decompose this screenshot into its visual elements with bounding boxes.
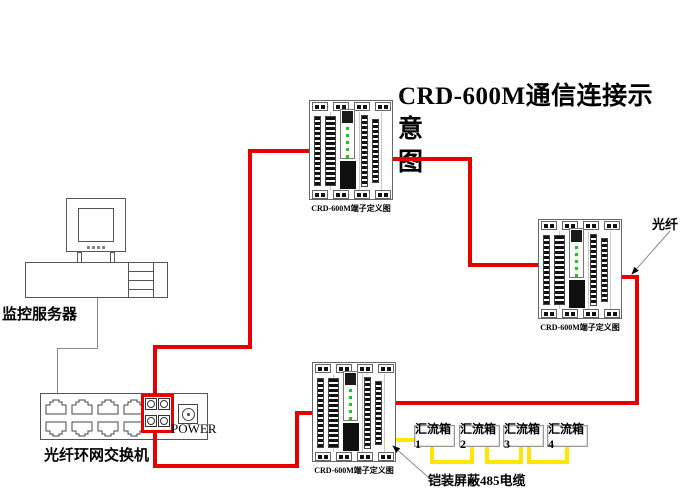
crd600m-panel-right — [538, 219, 622, 319]
monitor-button — [87, 246, 90, 249]
combiner-box-2: 汇流箱2 — [459, 425, 500, 447]
fiber-wire — [248, 149, 252, 349]
server-switch-cable — [97, 298, 98, 349]
combiner-box-1: 汇流箱1 — [414, 425, 455, 447]
combiner-box-4-label: 汇流箱4 — [548, 420, 587, 452]
combiner-box-1-label: 汇流箱1 — [415, 420, 454, 452]
cable485-wire — [485, 460, 523, 464]
fiber-label: 光纤 — [652, 214, 678, 233]
server-case-divider — [153, 262, 154, 298]
fiber-port — [158, 415, 170, 427]
fiber-wire — [295, 411, 299, 468]
server-label: 监控服务器 — [2, 303, 77, 324]
diagram-canvas: CRD-600M通信连接示意 图 监控服务器 POWER 光纤 — [0, 0, 680, 500]
fiber-wire — [468, 263, 548, 267]
cable485-label: 铠装屏蔽485电缆 — [428, 470, 526, 489]
fiber-port — [145, 415, 157, 427]
panel-caption-bottom: CRD-600M端子定义图 — [299, 465, 409, 476]
fiber-port — [145, 398, 157, 410]
comm-module — [340, 109, 355, 159]
fiber-wire — [153, 431, 157, 468]
server-drive-bay-line — [128, 289, 153, 290]
fiber-wire — [153, 464, 299, 468]
panel-caption-right: CRD-600M端子定义图 — [525, 322, 635, 333]
panel-caption-top: CRD-600M端子定义图 — [296, 203, 406, 214]
monitor-button — [97, 246, 100, 249]
cable485-wire — [430, 460, 474, 464]
fiber-wire — [468, 157, 472, 267]
page-title: CRD-600M通信连接示意 图 — [398, 80, 673, 179]
monitor-screen — [78, 208, 114, 242]
fiber-port — [158, 398, 170, 410]
monitor-stand-right — [110, 252, 115, 262]
fiber-wire — [635, 275, 639, 405]
monitor-button — [92, 246, 95, 249]
server-switch-cable — [57, 348, 98, 349]
fiber-wire — [153, 347, 157, 397]
monitor-button — [102, 246, 105, 249]
server-drive-bay-line — [128, 280, 153, 281]
fiber-leader-line — [632, 231, 670, 274]
combiner-box-3: 汇流箱3 — [503, 425, 544, 447]
combiner-box-4: 汇流箱4 — [547, 425, 588, 447]
switch-label: 光纤环网交换机 — [44, 444, 149, 465]
comm-module — [343, 371, 358, 421]
fiber-wire — [153, 345, 252, 349]
crd600m-panel-top — [309, 100, 393, 200]
monitor-stand-left — [77, 252, 82, 262]
page-title-line2: 图 — [398, 146, 673, 179]
server-drive-bay-line — [128, 271, 153, 272]
comm-module — [569, 228, 584, 278]
power-label: POWER — [171, 421, 217, 437]
server-switch-cable — [57, 348, 58, 394]
page-title-line1: CRD-600M通信连接示意 — [398, 80, 673, 146]
crd600m-panel-bottom — [312, 362, 396, 462]
combiner-box-2-label: 汇流箱2 — [460, 420, 499, 452]
combiner-box-3-label: 汇流箱3 — [504, 420, 543, 452]
cable485-wire — [527, 460, 569, 464]
